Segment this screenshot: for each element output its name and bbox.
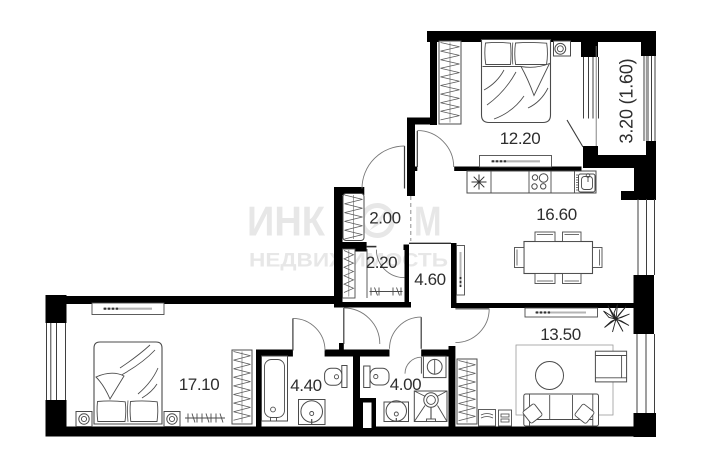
svg-text:ИНК: ИНК bbox=[247, 198, 326, 245]
svg-text:13.50: 13.50 bbox=[540, 325, 581, 344]
svg-text:17.10: 17.10 bbox=[179, 375, 220, 394]
svg-text:М: М bbox=[414, 198, 442, 245]
svg-text:12.20: 12.20 bbox=[500, 129, 541, 148]
svg-text:4.00: 4.00 bbox=[390, 375, 422, 394]
svg-text:16.60: 16.60 bbox=[536, 205, 577, 224]
svg-text:2.00: 2.00 bbox=[369, 209, 401, 228]
svg-text:3.20 (1.60): 3.20 (1.60) bbox=[617, 59, 637, 144]
svg-text:4.60: 4.60 bbox=[414, 270, 446, 289]
svg-text:4.40: 4.40 bbox=[290, 376, 322, 395]
svg-text:2.20: 2.20 bbox=[366, 253, 398, 272]
